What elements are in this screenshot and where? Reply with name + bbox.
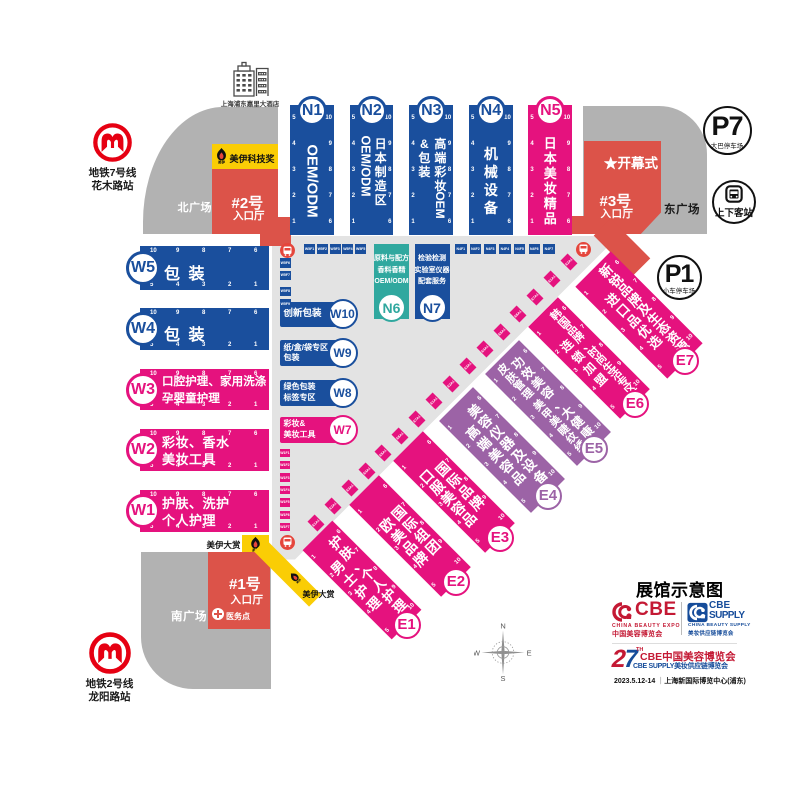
svg-text:S: S [501,674,506,682]
svg-text:E: E [527,648,532,657]
svg-text:N: N [500,623,505,630]
svg-text:W: W [474,648,480,657]
svg-text:美伊: 美伊 [217,159,226,164]
